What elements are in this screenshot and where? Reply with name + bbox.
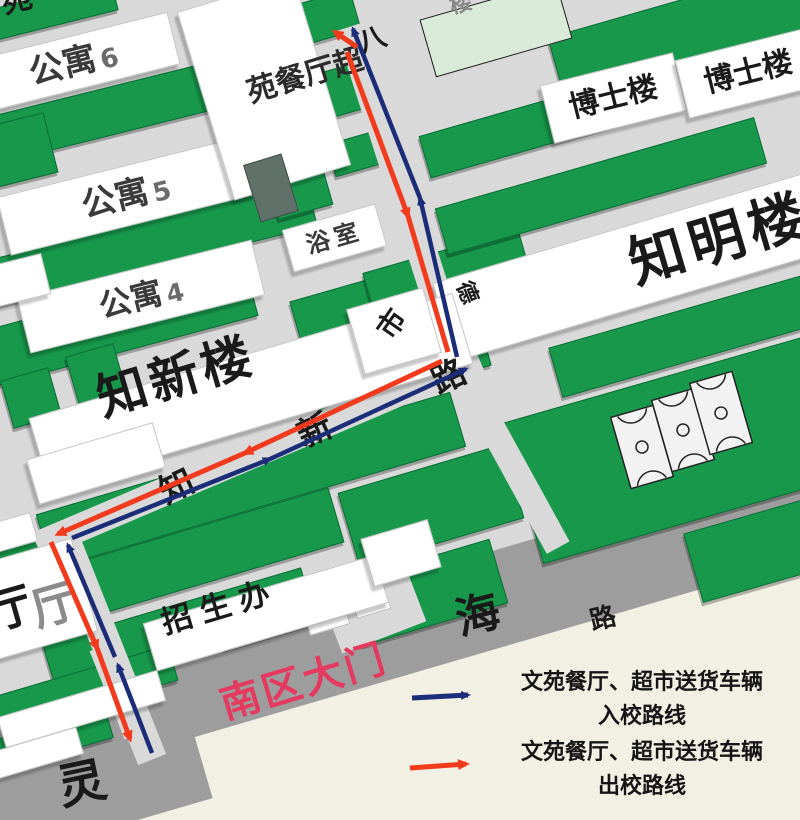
- legend-entry-in: 文苑餐厅、超市送货车辆 入校路线: [492, 666, 792, 734]
- legend-in-line1: 文苑餐厅、超市送货车辆: [492, 666, 792, 700]
- legend-entry-out: 文苑餐厅、超市送货车辆 出校路线: [492, 736, 792, 804]
- campus-map: 公寓 6 公寓 5 公寓 4 苑餐厅超 浴室 博士楼 博士楼 知明楼 知新楼 市…: [0, 0, 800, 820]
- route-in: [68, 29, 466, 753]
- legend-in-line2: 入校路线: [492, 700, 792, 734]
- route-out: [51, 32, 448, 739]
- legend-out-line1: 文苑餐厅、超市送货车辆: [492, 736, 792, 770]
- legend-arrow-in: [408, 686, 488, 706]
- legend-arrow-out: [406, 755, 486, 775]
- legend-out-line2: 出校路线: [492, 770, 792, 804]
